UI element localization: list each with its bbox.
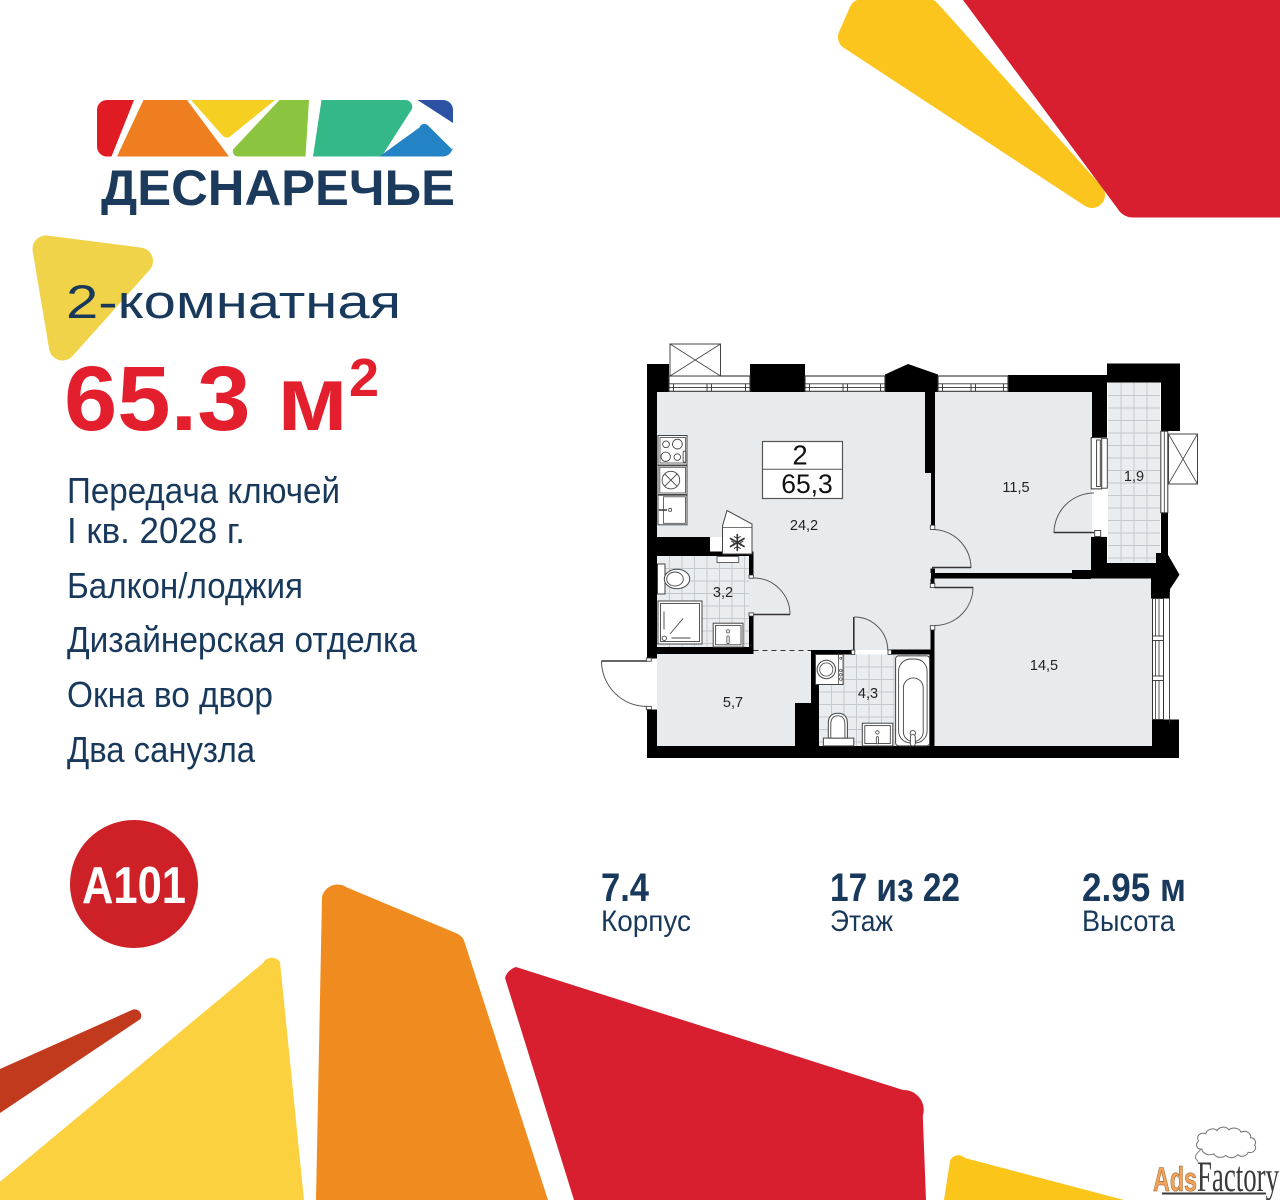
svg-text:17 из 22: 17 из 22 <box>830 866 960 910</box>
svg-text:1,9: 1,9 <box>1124 469 1144 485</box>
svg-text:Передача ключей: Передача ключей <box>67 470 340 511</box>
svg-text:7.4: 7.4 <box>601 866 650 910</box>
svg-text:3,2: 3,2 <box>713 585 733 601</box>
svg-text:ДЕСНАРЕЧЬЕ: ДЕСНАРЕЧЬЕ <box>101 160 455 216</box>
svg-text:24,2: 24,2 <box>790 518 818 534</box>
svg-text:11,5: 11,5 <box>1002 480 1029 496</box>
svg-text:2-комнатная: 2-комнатная <box>66 275 401 328</box>
svg-text:Дизайнерская отделка: Дизайнерская отделка <box>67 619 418 660</box>
svg-text:A101: A101 <box>82 857 186 915</box>
svg-text:65.3 м: 65.3 м <box>64 348 348 450</box>
svg-text:Корпус: Корпус <box>601 905 691 938</box>
svg-text:2.95 м: 2.95 м <box>1082 866 1186 910</box>
svg-text:Высота: Высота <box>1082 905 1175 938</box>
svg-text:I кв. 2028 г.: I кв. 2028 г. <box>67 510 245 551</box>
svg-text:4,3: 4,3 <box>858 686 878 702</box>
svg-text:Балкон/лоджия: Балкон/лоджия <box>67 565 303 606</box>
svg-text:Окна во двор: Окна во двор <box>67 674 273 715</box>
svg-text:65,3: 65,3 <box>781 469 833 499</box>
svg-text:14,5: 14,5 <box>1030 658 1058 674</box>
svg-text:Два санузла: Два санузла <box>67 729 256 770</box>
svg-text:2: 2 <box>349 348 379 408</box>
svg-text:Этаж: Этаж <box>830 905 893 938</box>
svg-text:2: 2 <box>792 440 807 471</box>
svg-text:5,7: 5,7 <box>723 695 743 711</box>
